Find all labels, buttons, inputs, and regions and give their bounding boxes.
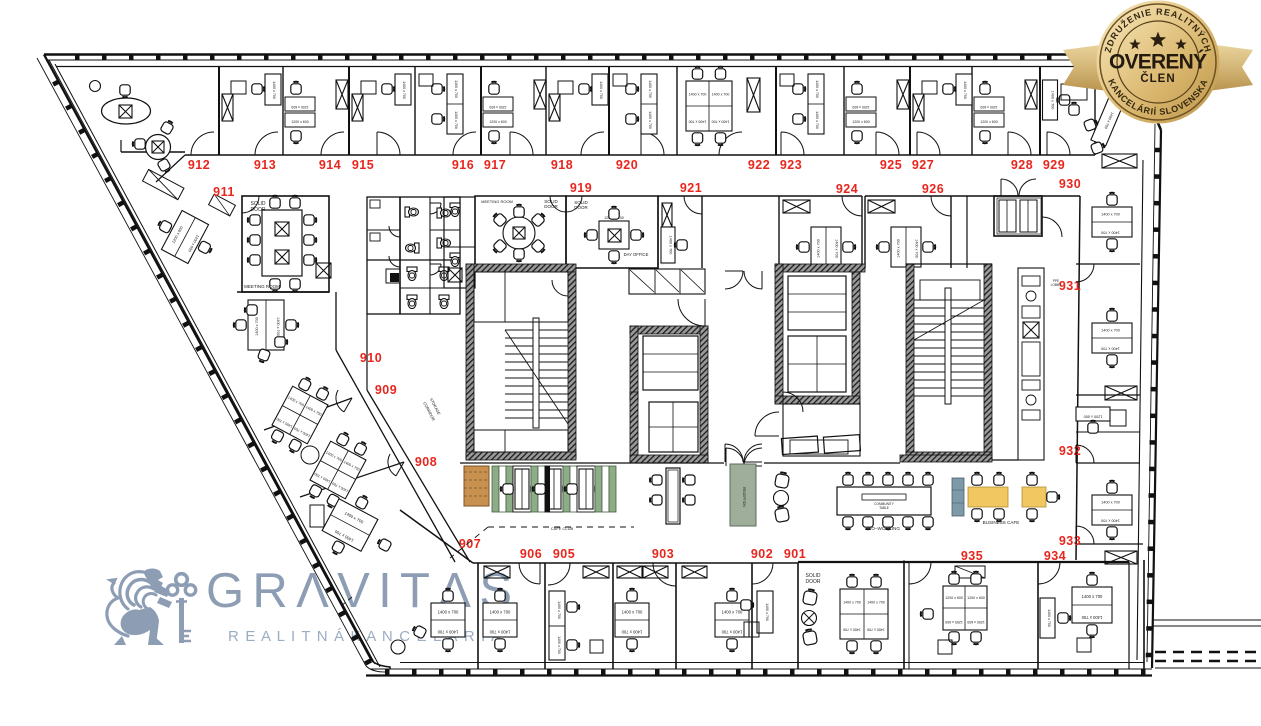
svg-text:933: 933 <box>1059 534 1081 548</box>
svg-text:1200 x 600: 1200 x 600 <box>291 120 308 124</box>
svg-text:931: 931 <box>1059 279 1081 293</box>
svg-text:1400 x 700: 1400 x 700 <box>867 628 885 632</box>
svg-text:1400 x 700: 1400 x 700 <box>897 239 901 258</box>
svg-text:918: 918 <box>551 158 573 172</box>
svg-text:MEETING ROOM: MEETING ROOM <box>244 284 280 289</box>
svg-text:1400 x 700: 1400 x 700 <box>1101 519 1120 523</box>
svg-text:1200 x 600: 1200 x 600 <box>852 120 869 124</box>
svg-text:1400 x 700: 1400 x 700 <box>621 630 642 635</box>
svg-text:921: 921 <box>680 181 702 195</box>
svg-text:1400 x 700: 1400 x 700 <box>648 111 652 129</box>
svg-text:916: 916 <box>452 158 474 172</box>
svg-text:BUSINESS CAFE: BUSINESS CAFE <box>983 520 1020 525</box>
svg-text:CO–WORKING: CO–WORKING <box>868 526 900 531</box>
svg-text:1400 x 700: 1400 x 700 <box>490 610 511 615</box>
svg-text:917: 917 <box>484 158 506 172</box>
svg-text:907: 907 <box>459 537 481 551</box>
svg-text:923: 923 <box>780 158 802 172</box>
svg-text:920: 920 <box>616 158 638 172</box>
svg-text:1400 x 700: 1400 x 700 <box>276 317 280 336</box>
svg-text:1400 x 700: 1400 x 700 <box>622 610 643 615</box>
svg-text:924: 924 <box>836 182 858 196</box>
svg-text:1400 x 700: 1400 x 700 <box>689 120 707 124</box>
svg-text:919: 919 <box>570 181 592 195</box>
svg-text:926: 926 <box>922 182 944 196</box>
svg-text:1400 x 700: 1400 x 700 <box>1101 501 1120 505</box>
svg-text:906: 906 <box>520 547 542 561</box>
svg-text:DOOR: DOOR <box>806 579 821 585</box>
svg-text:1400 x 700: 1400 x 700 <box>1082 594 1103 599</box>
svg-text:1200 x 600: 1200 x 600 <box>980 105 997 109</box>
svg-text:913: 913 <box>254 158 276 172</box>
svg-text:TABLE: TABLE <box>879 506 889 510</box>
svg-text:1400 x 700: 1400 x 700 <box>1047 609 1051 627</box>
svg-text:1400 x 700: 1400 x 700 <box>765 603 769 621</box>
svg-text:1400 x 700: 1400 x 700 <box>402 81 406 99</box>
svg-text:922: 922 <box>748 158 770 172</box>
svg-text:914: 914 <box>319 158 341 172</box>
svg-text:1400 x 700: 1400 x 700 <box>1081 615 1102 620</box>
svg-text:1400 x 700: 1400 x 700 <box>815 111 819 129</box>
svg-text:MEETING ROOM: MEETING ROOM <box>481 199 513 204</box>
svg-text:930: 930 <box>1059 177 1081 191</box>
svg-text:1400 x 700: 1400 x 700 <box>255 317 259 336</box>
svg-text:1400 x 700: 1400 x 700 <box>1101 231 1120 235</box>
svg-text:1400 x 700: 1400 x 700 <box>1101 329 1120 333</box>
svg-text:925: 925 <box>880 158 902 172</box>
svg-text:932: 932 <box>1059 444 1081 458</box>
svg-text:1200 x 600: 1200 x 600 <box>489 105 506 109</box>
svg-text:1400 x 700: 1400 x 700 <box>438 610 459 615</box>
svg-text:DOOR: DOOR <box>574 205 588 210</box>
svg-text:1200 x 600: 1200 x 600 <box>1084 415 1103 419</box>
svg-text:1400 x 700: 1400 x 700 <box>557 636 561 654</box>
svg-text:1400 x 700: 1400 x 700 <box>489 630 510 635</box>
svg-text:1200 x 600: 1200 x 600 <box>945 596 963 600</box>
svg-text:GRΛVITΛS: GRΛVITΛS <box>206 564 518 618</box>
svg-text:1200 x 600: 1200 x 600 <box>967 596 985 600</box>
svg-text:1400 x 700: 1400 x 700 <box>817 239 821 258</box>
svg-text:1400 x 700: 1400 x 700 <box>815 80 819 98</box>
svg-text:901: 901 <box>784 547 806 561</box>
svg-text:1200 x 600: 1200 x 600 <box>291 105 308 109</box>
svg-text:1400 x 700: 1400 x 700 <box>721 630 742 635</box>
svg-text:1400 x 700: 1400 x 700 <box>963 81 967 99</box>
svg-text:1400 x 700: 1400 x 700 <box>669 236 673 255</box>
svg-text:1400 x 700: 1400 x 700 <box>272 81 276 99</box>
svg-text:911: 911 <box>213 185 235 199</box>
svg-text:935: 935 <box>961 549 983 563</box>
svg-text:908: 908 <box>415 455 437 469</box>
svg-text:DOOR: DOOR <box>251 207 266 213</box>
svg-text:1400 x 700: 1400 x 700 <box>454 80 458 98</box>
svg-text:928: 928 <box>1011 158 1033 172</box>
svg-text:1200 x 600: 1200 x 600 <box>967 620 985 624</box>
svg-text:912: 912 <box>188 158 210 172</box>
svg-text:1400 x 700: 1400 x 700 <box>1051 91 1055 110</box>
svg-text:929: 929 <box>1043 158 1065 172</box>
svg-text:ČLEN: ČLEN <box>1140 72 1175 85</box>
svg-text:1400 x 700: 1400 x 700 <box>712 93 730 97</box>
svg-text:LOBBY: LOBBY <box>1051 283 1063 287</box>
svg-text:1400 x 700: 1400 x 700 <box>843 601 861 605</box>
svg-text:909: 909 <box>375 383 397 397</box>
svg-text:1400 x 700: 1400 x 700 <box>648 80 652 98</box>
svg-text:1400 x 700: 1400 x 700 <box>689 93 707 97</box>
svg-text:DAY OFFICE: DAY OFFICE <box>624 252 649 257</box>
svg-text:1200 x 600: 1200 x 600 <box>945 620 963 624</box>
svg-text:RECEPTION: RECEPTION <box>742 487 746 507</box>
svg-text:CAFE CLUB: CAFE CLUB <box>551 526 574 531</box>
svg-text:1400 x 700: 1400 x 700 <box>437 630 458 635</box>
svg-text:1400 x 700: 1400 x 700 <box>835 239 839 258</box>
svg-text:905: 905 <box>553 547 575 561</box>
svg-text:1400 x 700: 1400 x 700 <box>454 111 458 129</box>
svg-text:1400 x 700: 1400 x 700 <box>1101 213 1120 217</box>
svg-text:910: 910 <box>360 351 382 365</box>
svg-text:1200 x 600: 1200 x 600 <box>980 120 997 124</box>
svg-text:903: 903 <box>652 547 674 561</box>
svg-text:1400 x 700: 1400 x 700 <box>915 239 919 258</box>
svg-text:1400 x 700: 1400 x 700 <box>557 601 561 619</box>
svg-text:902: 902 <box>751 547 773 561</box>
svg-text:927: 927 <box>912 158 934 172</box>
svg-text:OVERENÝ: OVERENÝ <box>1109 50 1207 74</box>
svg-text:1200 x 600: 1200 x 600 <box>489 120 506 124</box>
svg-text:1400 x 700: 1400 x 700 <box>843 628 861 632</box>
svg-text:1400 x 700: 1400 x 700 <box>867 601 885 605</box>
svg-text:1400 x 700: 1400 x 700 <box>1101 347 1120 351</box>
svg-text:1400 x 700: 1400 x 700 <box>599 81 603 99</box>
svg-text:1400 x 700: 1400 x 700 <box>712 120 730 124</box>
svg-text:1200 x 600: 1200 x 600 <box>852 105 869 109</box>
svg-text:934: 934 <box>1044 549 1066 563</box>
svg-text:1400 x 700: 1400 x 700 <box>722 610 743 615</box>
svg-text:915: 915 <box>352 158 374 172</box>
